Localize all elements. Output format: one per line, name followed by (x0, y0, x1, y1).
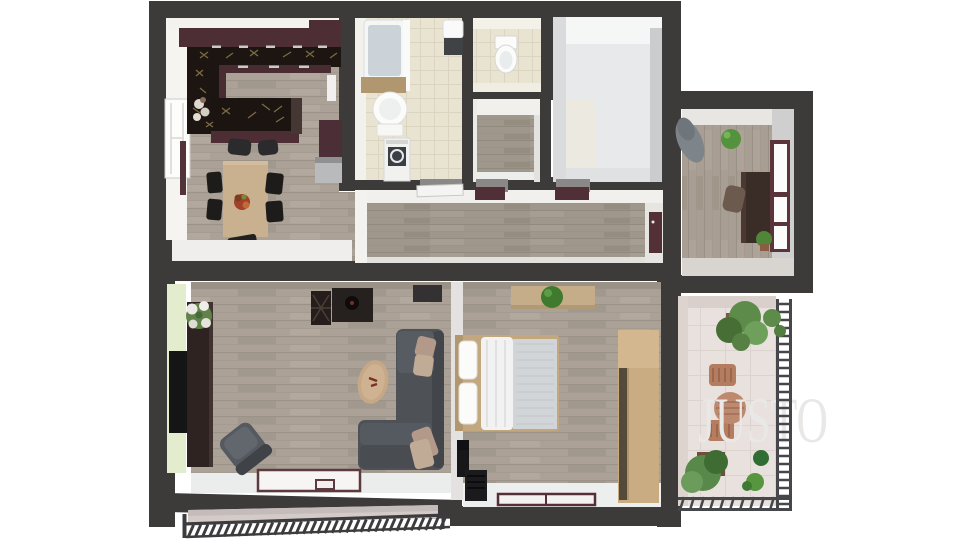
svg-text:JUSTO: JUSTO (698, 385, 828, 457)
